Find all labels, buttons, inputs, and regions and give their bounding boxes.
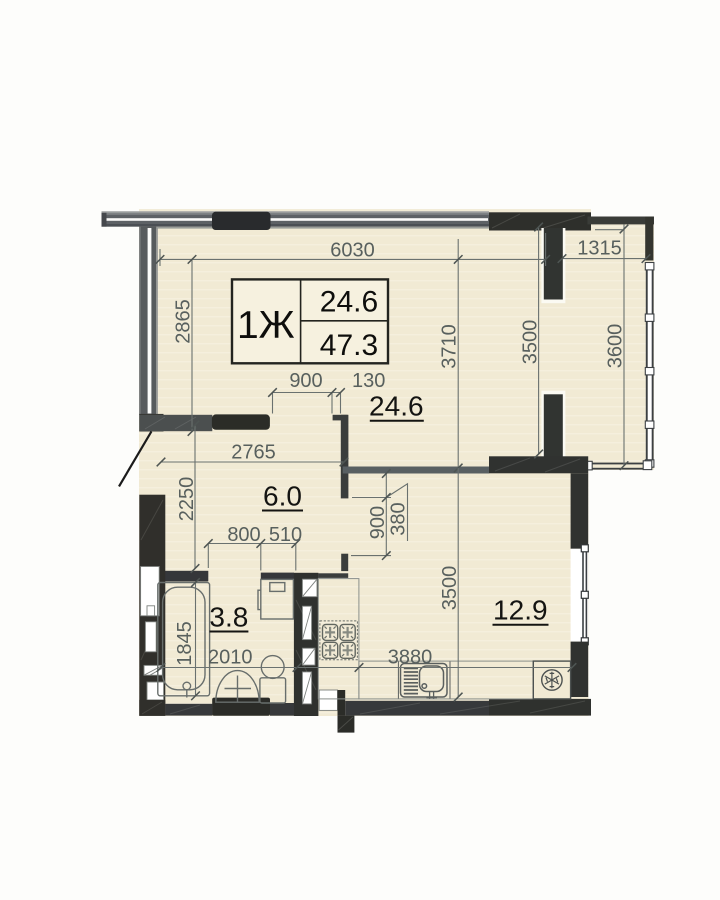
svg-text:1845: 1845 (174, 621, 196, 666)
svg-text:800: 800 (227, 524, 260, 546)
svg-text:6.0: 6.0 (263, 481, 302, 512)
svg-text:2010: 2010 (208, 647, 253, 669)
svg-text:130: 130 (352, 370, 385, 392)
svg-text:2865: 2865 (173, 299, 195, 344)
svg-text:6030: 6030 (330, 240, 375, 262)
svg-text:12.9: 12.9 (493, 595, 548, 626)
svg-text:1315: 1315 (577, 238, 622, 260)
svg-text:380: 380 (388, 502, 410, 535)
svg-text:3500: 3500 (520, 320, 542, 365)
svg-text:3600: 3600 (605, 324, 627, 369)
svg-text:900: 900 (367, 506, 389, 539)
svg-text:47.3: 47.3 (320, 329, 378, 362)
svg-text:24.6: 24.6 (369, 391, 424, 422)
svg-text:2250: 2250 (176, 477, 198, 522)
svg-text:3.8: 3.8 (209, 602, 248, 633)
svg-text:3500: 3500 (439, 566, 461, 611)
svg-text:2765: 2765 (231, 442, 276, 464)
svg-text:24.6: 24.6 (320, 286, 378, 319)
svg-text:1Ж: 1Ж (237, 304, 295, 347)
svg-text:900: 900 (289, 370, 322, 392)
svg-text:510: 510 (269, 524, 302, 546)
svg-text:3710: 3710 (439, 324, 461, 369)
svg-text:3880: 3880 (388, 647, 433, 669)
